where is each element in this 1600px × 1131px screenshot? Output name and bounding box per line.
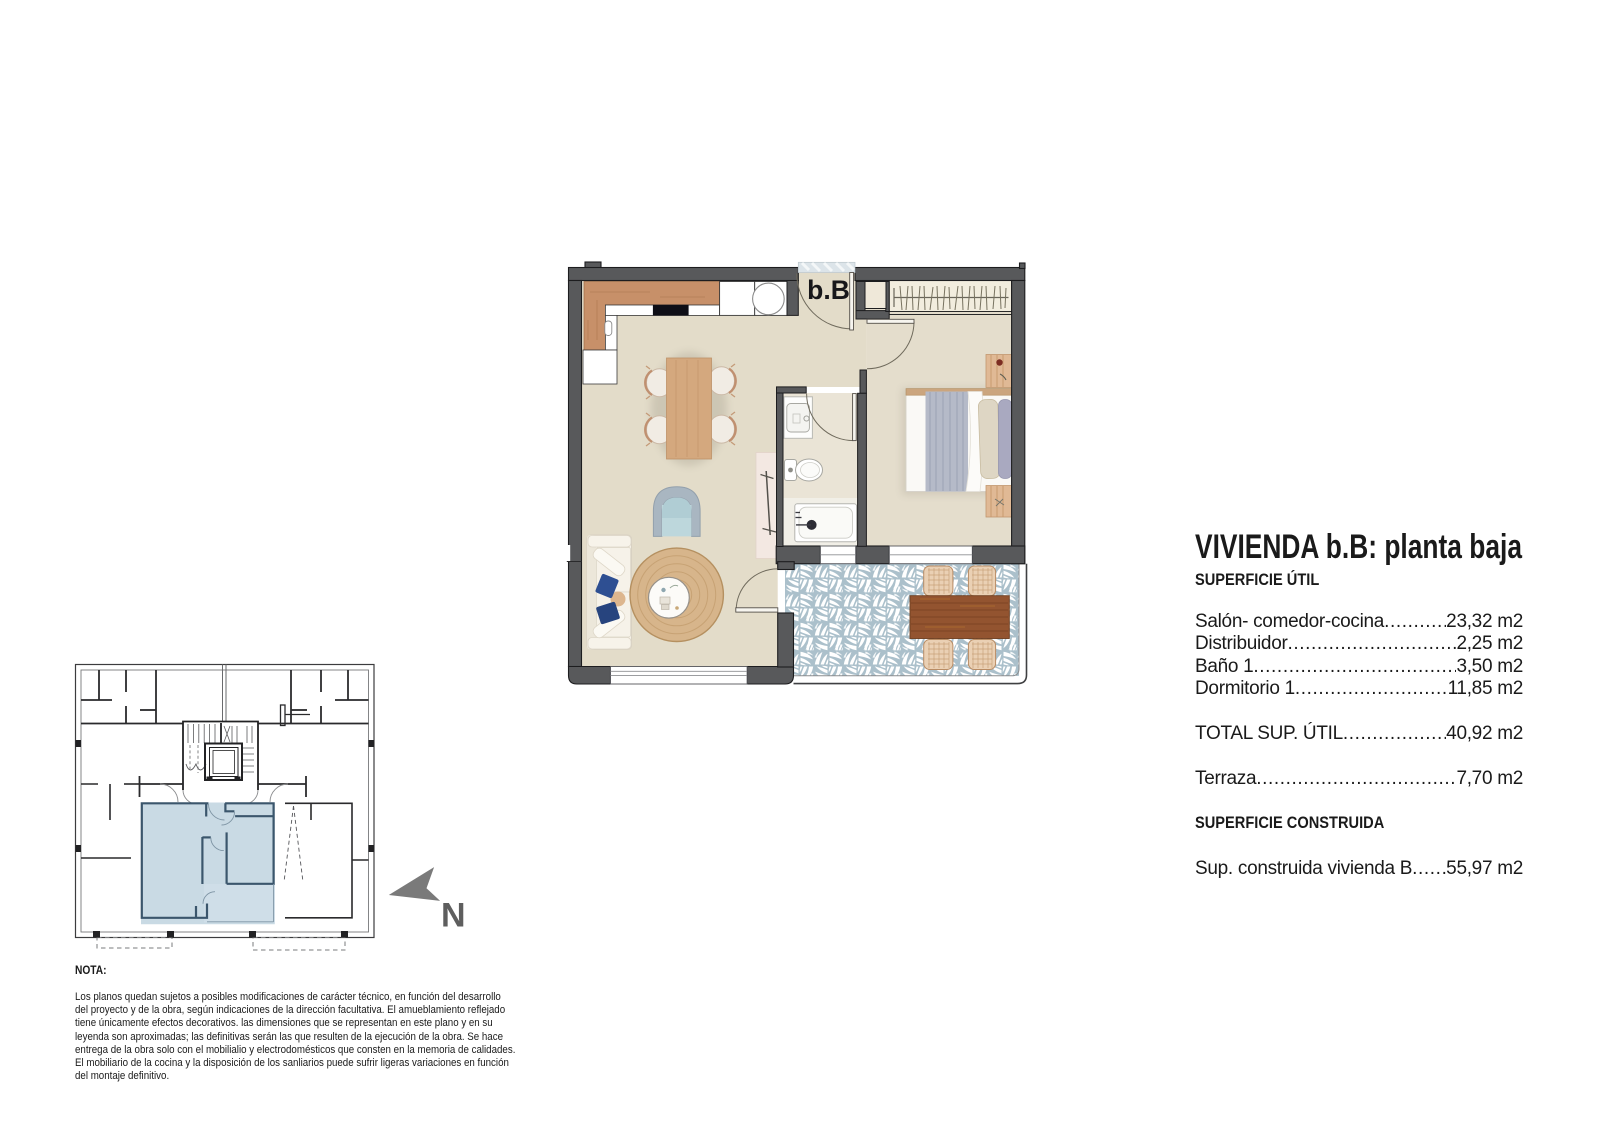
svg-text:N: N (441, 897, 466, 935)
svg-text:b.B: b.B (807, 275, 850, 305)
